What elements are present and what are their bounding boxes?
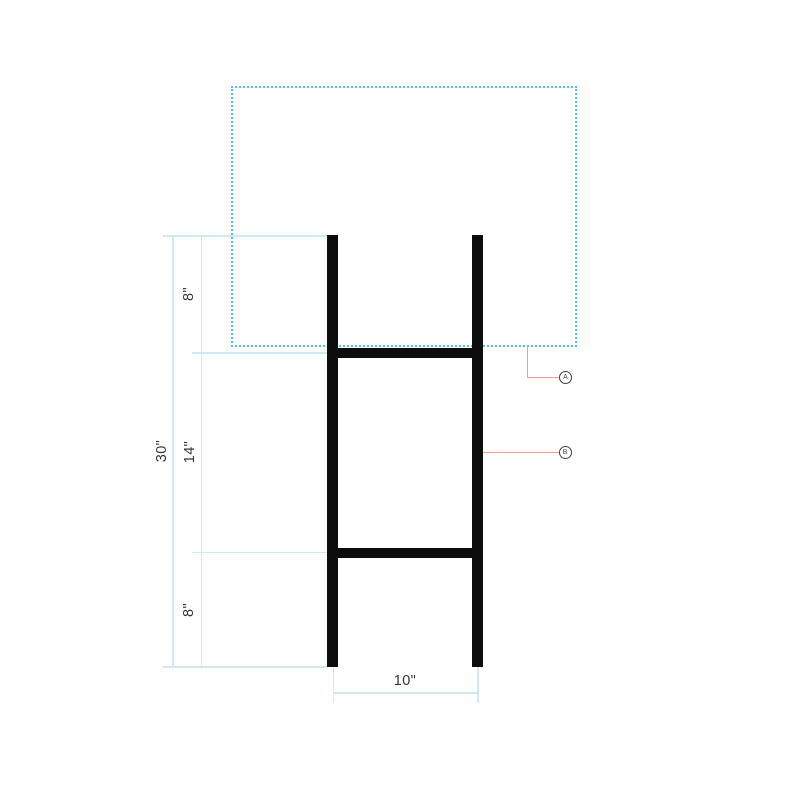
dimension-label-middle-segment: 14" bbox=[182, 441, 198, 463]
width-dimension-line bbox=[333, 692, 479, 694]
segment-dimension-line bbox=[201, 236, 203, 667]
dimension-label-overall-height: 30" bbox=[154, 440, 170, 462]
callout-a-leader-vertical bbox=[527, 347, 529, 378]
sign-panel-outline bbox=[231, 86, 577, 347]
dimension-label-bottom-segment: 8" bbox=[181, 603, 197, 617]
extension-line-stake-bottom bbox=[163, 666, 328, 668]
diagram-canvas: 30" 8" 14" 8" 10" A B bbox=[0, 0, 792, 792]
callout-a-badge: A bbox=[559, 371, 572, 384]
width-extension-line-right bbox=[477, 667, 479, 703]
frame-left-upright bbox=[327, 235, 338, 667]
extension-line-stake-top bbox=[163, 235, 330, 237]
overall-height-dimension-line bbox=[172, 236, 174, 667]
dimension-label-stake-width: 10" bbox=[394, 673, 416, 689]
frame-right-upright bbox=[472, 235, 483, 667]
extension-line-lower-crossbar bbox=[192, 552, 330, 554]
callout-a-leader-horizontal bbox=[527, 377, 561, 379]
dimension-label-top-segment: 8" bbox=[181, 287, 197, 301]
width-extension-line-left bbox=[333, 667, 335, 703]
frame-top-crossbar bbox=[327, 348, 483, 358]
extension-line-upper-crossbar bbox=[192, 352, 330, 354]
frame-bottom-crossbar bbox=[327, 548, 483, 558]
callout-b-badge: B bbox=[559, 446, 572, 459]
callout-b-leader bbox=[483, 452, 560, 454]
